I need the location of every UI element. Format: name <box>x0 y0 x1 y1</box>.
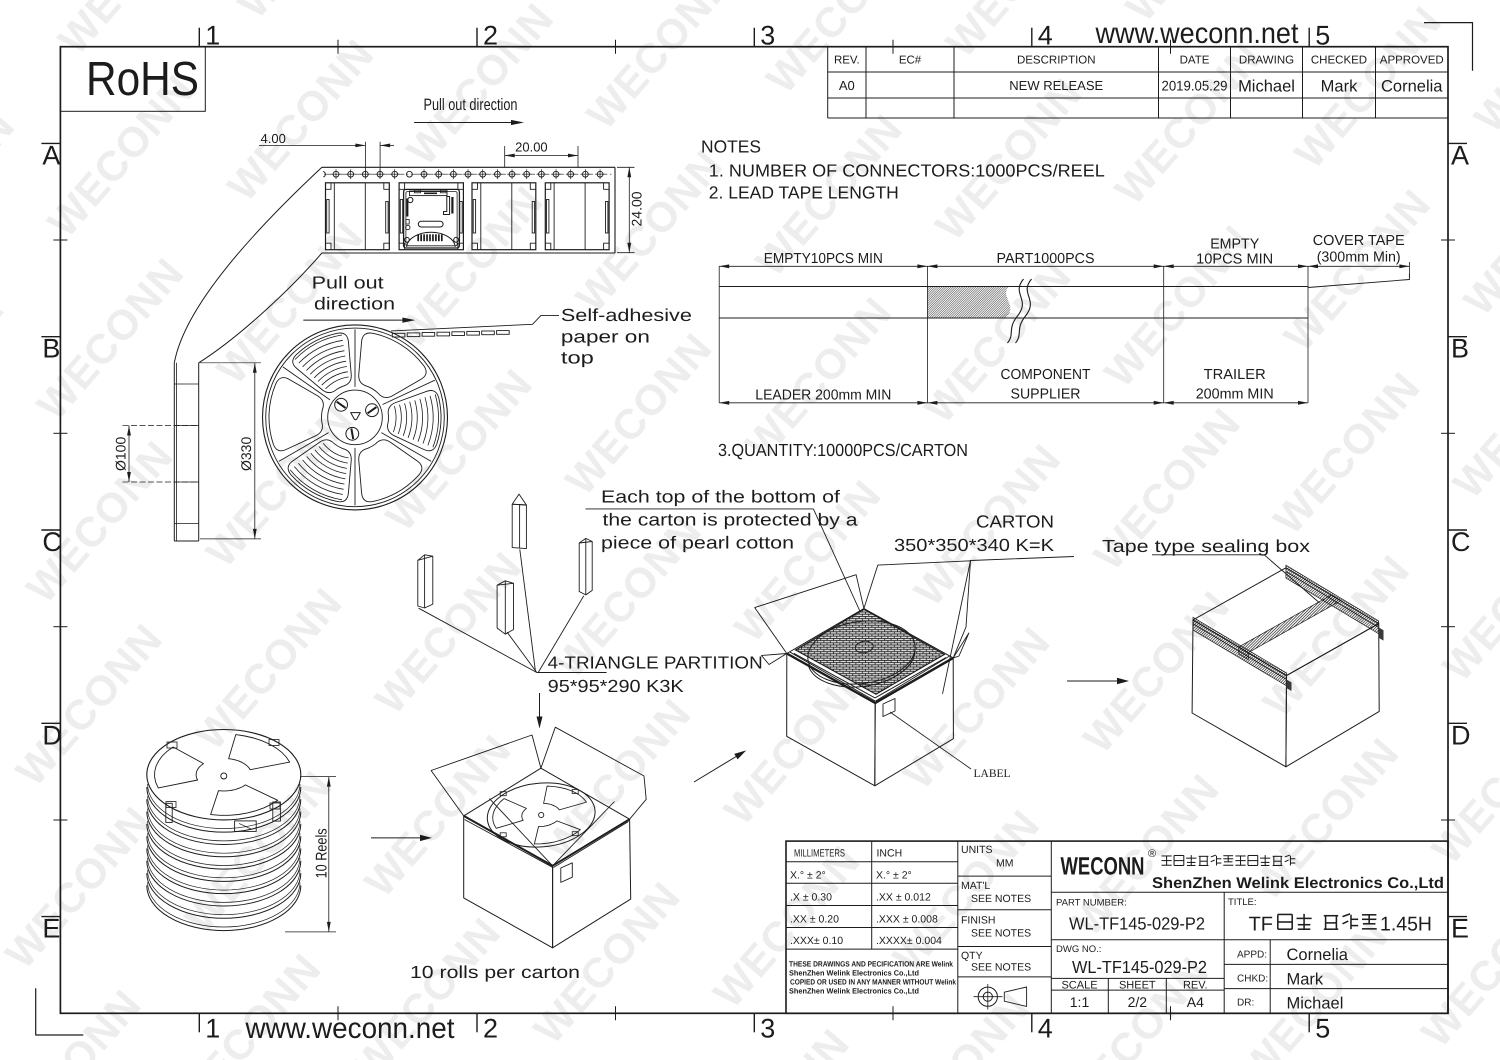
svg-text:EMPTY10PCS MIN: EMPTY10PCS MIN <box>764 251 883 267</box>
svg-text:Pull out: Pull out <box>312 273 384 293</box>
svg-text:10PCS MIN: 10PCS MIN <box>1196 252 1273 268</box>
svg-text:.XXXX± 0.004: .XXXX± 0.004 <box>876 935 942 947</box>
svg-text:Each top of the bottom of: Each top of the bottom of <box>601 486 840 506</box>
svg-text:INCH: INCH <box>877 848 903 860</box>
svg-text:SUPPLIER: SUPPLIER <box>1011 387 1081 403</box>
svg-text:10 Reels: 10 Reels <box>314 828 331 878</box>
svg-text:Ø330: Ø330 <box>238 437 254 471</box>
svg-text:X.° ± 2°: X.° ± 2° <box>876 870 912 882</box>
svg-text:LEADER 200mm MIN: LEADER 200mm MIN <box>755 388 891 404</box>
svg-text:WL-TF145-029-P2: WL-TF145-029-P2 <box>1072 957 1207 977</box>
svg-text:QTY: QTY <box>961 950 983 962</box>
svg-text:THESE DRAWINGS AND PECIFICATIO: THESE DRAWINGS AND PECIFICATION ARE Weli… <box>789 960 954 969</box>
svg-text:DWG NO.:: DWG NO.: <box>1056 944 1101 955</box>
svg-text:SEE NOTES: SEE NOTES <box>971 893 1031 905</box>
svg-text:COMPONENT: COMPONENT <box>1001 367 1091 383</box>
svg-text:FINISH: FINISH <box>961 915 995 927</box>
svg-text:paper on: paper on <box>561 326 650 346</box>
svg-text:E: E <box>42 914 60 944</box>
svg-text:Tape type sealing box: Tape type sealing box <box>1102 536 1310 556</box>
svg-text:PART1000PCS: PART1000PCS <box>997 251 1095 267</box>
svg-text:5: 5 <box>1315 1013 1330 1043</box>
svg-text:1. NUMBER OF CONNECTORS:1000PC: 1. NUMBER OF CONNECTORS:1000PCS/REEL <box>709 161 1105 181</box>
svg-text:D: D <box>42 720 62 750</box>
svg-text:Michael: Michael <box>1238 78 1295 96</box>
svg-text:LABEL: LABEL <box>974 768 1011 780</box>
svg-text:(300mm Min): (300mm Min) <box>1317 250 1401 266</box>
svg-text:direction: direction <box>314 294 395 314</box>
svg-text:1.45H: 1.45H <box>1380 914 1432 936</box>
svg-text:REV.: REV. <box>834 55 860 67</box>
svg-text:3: 3 <box>760 1013 775 1043</box>
svg-text:.XXX± 0.10: .XXX± 0.10 <box>790 935 843 947</box>
svg-text:C: C <box>1451 527 1471 557</box>
svg-text:PART NUMBER:: PART NUMBER: <box>1056 898 1127 909</box>
svg-text:350*350*340 K=K: 350*350*340 K=K <box>894 535 1054 555</box>
svg-text:www.weconn.net: www.weconn.net <box>1095 18 1299 50</box>
svg-text:COPIED OR USED IN ANY MANNER W: COPIED OR USED IN ANY MANNER WITHOUT Wel… <box>790 978 957 987</box>
svg-text:4: 4 <box>1038 1013 1053 1043</box>
svg-text:10 rolls per carton: 10 rolls per carton <box>410 962 580 982</box>
svg-text:A: A <box>1451 140 1469 170</box>
svg-text:MILLIMETERS: MILLIMETERS <box>794 848 845 860</box>
svg-text:DRAWING: DRAWING <box>1239 55 1294 67</box>
svg-text:20.00: 20.00 <box>515 140 548 155</box>
svg-text:DR:: DR: <box>1237 998 1254 1009</box>
svg-text:MAT'L: MAT'L <box>961 880 990 892</box>
svg-text:.X ± 0.30: .X ± 0.30 <box>790 892 832 904</box>
svg-text:the carton is protected by a: the carton is protected by a <box>603 509 858 529</box>
svg-text:WL-TF145-029-P2: WL-TF145-029-P2 <box>1069 914 1205 934</box>
svg-text:DESCRIPTION: DESCRIPTION <box>1017 55 1096 67</box>
svg-text:®: ® <box>1148 848 1156 860</box>
svg-text:ShenZhen Welink Electronics Co: ShenZhen Welink Electronics Co.,Ltd <box>789 987 919 996</box>
svg-text:TITLE:: TITLE: <box>1228 897 1257 908</box>
svg-text:4-TRIANGLE PARTITION: 4-TRIANGLE PARTITION <box>548 653 763 673</box>
svg-text:SEE NOTES: SEE NOTES <box>971 927 1031 939</box>
svg-text:SCALE: SCALE <box>1061 979 1097 991</box>
svg-text:.XX ± 0.20: .XX ± 0.20 <box>790 914 839 926</box>
svg-text:2019.05.29: 2019.05.29 <box>1162 78 1228 94</box>
svg-text:DATE: DATE <box>1180 55 1210 67</box>
svg-text:Cornelia: Cornelia <box>1381 78 1443 96</box>
svg-text:CARTON: CARTON <box>976 512 1054 532</box>
svg-text:piece of pearl cotton: piece of pearl cotton <box>601 533 794 553</box>
svg-text:NEW RELEASE: NEW RELEASE <box>1009 78 1103 93</box>
svg-text:3.QUANTITY:10000PCS/CARTON: 3.QUANTITY:10000PCS/CARTON <box>718 440 968 460</box>
svg-text:CHECKED: CHECKED <box>1311 55 1367 67</box>
svg-text:UNITS: UNITS <box>961 844 993 856</box>
svg-text:WECONN: WECONN <box>1061 853 1145 881</box>
svg-text:www.weconn.net: www.weconn.net <box>245 1013 455 1045</box>
svg-text:COVER TAPE: COVER TAPE <box>1313 233 1405 249</box>
svg-text:24.00: 24.00 <box>629 191 645 226</box>
svg-text:EC#: EC# <box>899 55 922 67</box>
svg-text:2. LEAD TAPE LENGTH: 2. LEAD TAPE LENGTH <box>709 183 899 203</box>
svg-text:B: B <box>1451 334 1469 364</box>
svg-text:200mm MIN: 200mm MIN <box>1196 387 1274 403</box>
svg-text:4.00: 4.00 <box>261 131 286 146</box>
svg-text:REV.: REV. <box>1183 979 1208 991</box>
svg-text:A0: A0 <box>839 78 855 93</box>
svg-text:X.° ± 2°: X.° ± 2° <box>790 870 826 882</box>
svg-text:E: E <box>1451 914 1469 944</box>
svg-text:1: 1 <box>205 1013 220 1043</box>
svg-text:3: 3 <box>760 21 775 51</box>
svg-text:2: 2 <box>483 1013 498 1043</box>
svg-text:A4: A4 <box>1187 994 1204 1010</box>
svg-text:APPROVED: APPROVED <box>1380 55 1444 67</box>
svg-text:APPD:: APPD: <box>1237 950 1267 961</box>
svg-text:ShenZhen Welink Electronics Co: ShenZhen Welink Electronics Co.,Ltd <box>1152 875 1444 892</box>
svg-text:Michael: Michael <box>1287 995 1344 1013</box>
svg-text:.XXX ± 0.008: .XXX ± 0.008 <box>876 914 938 926</box>
svg-text:B: B <box>42 334 60 364</box>
svg-text:RoHS: RoHS <box>86 53 199 106</box>
svg-text:TRAILER: TRAILER <box>1204 367 1266 383</box>
svg-text:2: 2 <box>483 21 498 51</box>
svg-text:TF: TF <box>1249 914 1273 936</box>
svg-text:A: A <box>42 140 60 170</box>
svg-text:95*95*290 K3K: 95*95*290 K3K <box>548 676 684 696</box>
svg-text:1:1: 1:1 <box>1070 994 1090 1010</box>
svg-text:SEE NOTES: SEE NOTES <box>971 962 1031 974</box>
svg-text:2/2: 2/2 <box>1128 994 1148 1010</box>
svg-text:CHKD:: CHKD: <box>1237 974 1268 985</box>
svg-text:Cornelia: Cornelia <box>1287 946 1349 964</box>
svg-text:ShenZhen Welink Electronics Co: ShenZhen Welink Electronics Co.,Ltd <box>789 969 919 978</box>
svg-text:Self-adhesive: Self-adhesive <box>561 305 692 325</box>
svg-text:C: C <box>42 527 62 557</box>
svg-text:EMPTY: EMPTY <box>1210 237 1259 253</box>
svg-text:Pull out direction: Pull out direction <box>424 96 518 114</box>
svg-text:.XX ± 0.012: .XX ± 0.012 <box>876 892 931 904</box>
svg-text:NOTES: NOTES <box>701 137 761 157</box>
svg-text:MM: MM <box>996 858 1014 870</box>
svg-text:Ø100: Ø100 <box>113 437 129 471</box>
svg-text:Mark: Mark <box>1287 971 1324 989</box>
svg-text:1: 1 <box>205 21 220 51</box>
svg-text:top: top <box>561 347 594 367</box>
svg-text:Mark: Mark <box>1321 78 1358 96</box>
svg-text:D: D <box>1451 720 1471 750</box>
svg-text:SHEET: SHEET <box>1119 979 1156 991</box>
